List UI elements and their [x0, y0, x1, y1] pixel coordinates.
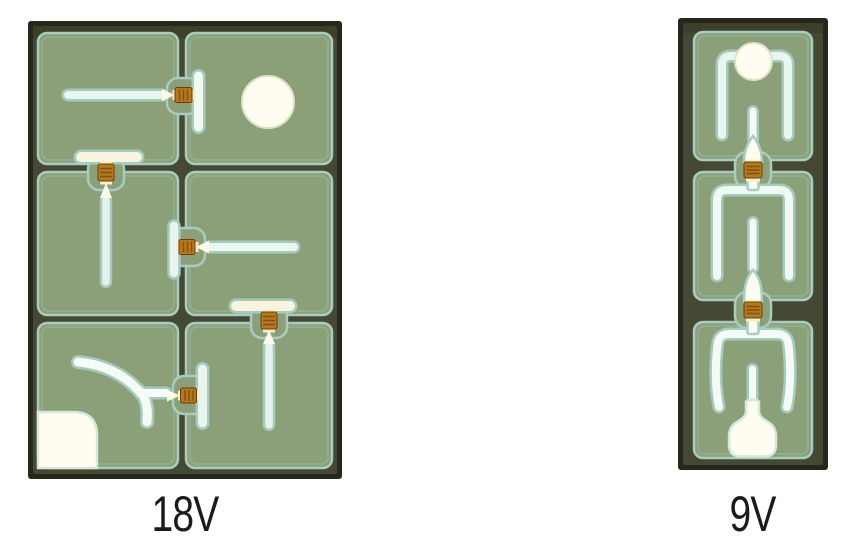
- caption-18v: 18V: [28, 492, 342, 542]
- caption-18v-label: 18V: [151, 492, 218, 536]
- chip-9v-svg: [678, 18, 828, 470]
- bond-pad-circle: [735, 43, 772, 80]
- chip-micrograph-18v: [28, 21, 342, 479]
- caption-9v-label: 9V: [730, 492, 776, 536]
- chip-micrograph-9v: [678, 18, 828, 470]
- bond-pad-circle: [242, 76, 294, 128]
- caption-9v: 9V: [678, 492, 828, 542]
- bond-pad-square: [38, 412, 97, 468]
- chip-18v-svg: [28, 21, 342, 479]
